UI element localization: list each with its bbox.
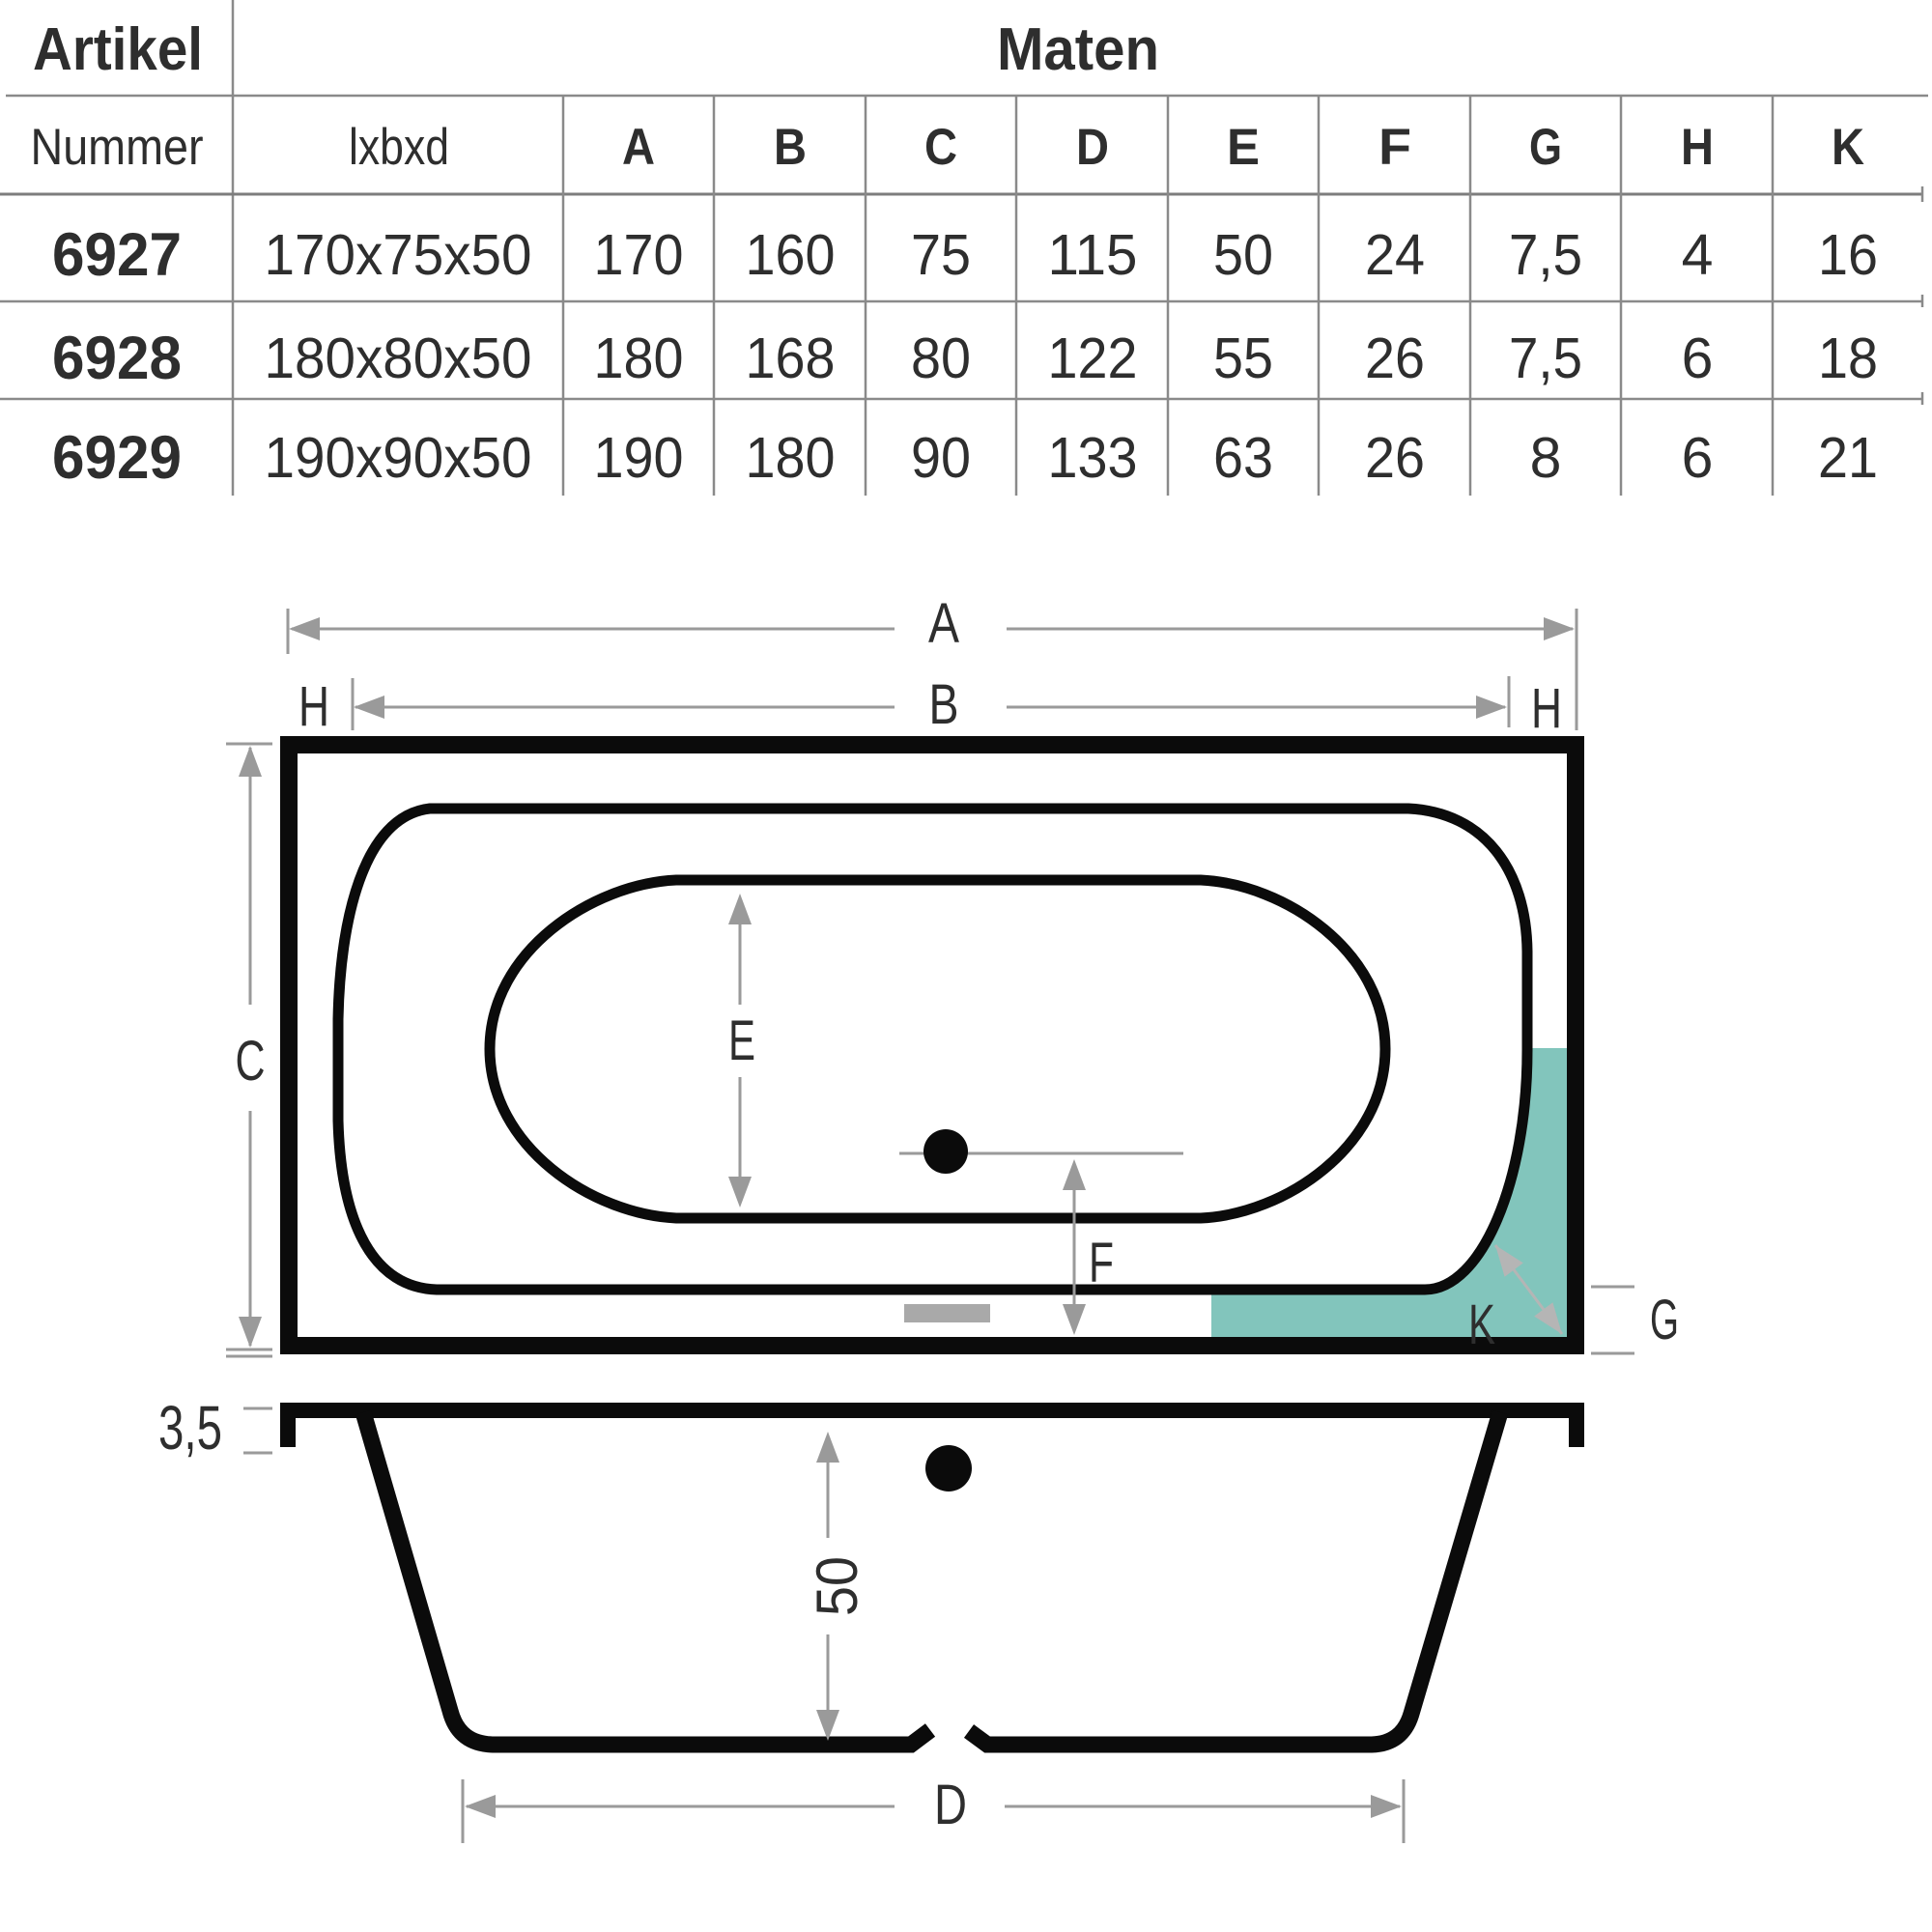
svg-text:K: K bbox=[1832, 119, 1864, 176]
svg-text:6927: 6927 bbox=[52, 221, 182, 289]
svg-text:F: F bbox=[1089, 1232, 1114, 1294]
svg-text:H: H bbox=[298, 675, 329, 738]
svg-text:B: B bbox=[774, 119, 807, 176]
svg-text:180: 180 bbox=[746, 426, 836, 490]
svg-text:90: 90 bbox=[911, 426, 971, 490]
svg-text:6929: 6929 bbox=[52, 424, 182, 492]
svg-text:115: 115 bbox=[1048, 223, 1138, 287]
svg-text:63: 63 bbox=[1213, 426, 1273, 490]
svg-text:K: K bbox=[1468, 1293, 1495, 1356]
svg-text:G: G bbox=[1650, 1289, 1679, 1351]
svg-text:50: 50 bbox=[1213, 223, 1273, 287]
svg-text:26: 26 bbox=[1365, 426, 1425, 490]
svg-text:24: 24 bbox=[1365, 223, 1425, 287]
svg-text:6928: 6928 bbox=[52, 325, 182, 392]
svg-text:168: 168 bbox=[746, 327, 836, 390]
svg-text:80: 80 bbox=[911, 327, 971, 390]
svg-text:170: 170 bbox=[594, 223, 684, 287]
svg-text:7,5: 7,5 bbox=[1509, 223, 1582, 287]
svg-text:190: 190 bbox=[594, 426, 684, 490]
svg-text:21: 21 bbox=[1818, 426, 1878, 490]
svg-text:A: A bbox=[622, 119, 655, 176]
svg-text:180: 180 bbox=[594, 327, 684, 390]
svg-text:A: A bbox=[928, 592, 959, 655]
svg-text:50: 50 bbox=[805, 1556, 869, 1616]
svg-text:8: 8 bbox=[1530, 426, 1562, 490]
svg-text:G: G bbox=[1529, 119, 1562, 176]
svg-text:55: 55 bbox=[1213, 327, 1273, 390]
svg-text:H: H bbox=[1531, 677, 1562, 740]
svg-text:26: 26 bbox=[1365, 327, 1425, 390]
svg-text:H: H bbox=[1681, 119, 1714, 176]
svg-text:122: 122 bbox=[1048, 327, 1138, 390]
svg-text:Artikel: Artikel bbox=[33, 16, 203, 83]
svg-text:4: 4 bbox=[1682, 223, 1714, 287]
svg-text:190x90x50: 190x90x50 bbox=[265, 426, 532, 490]
svg-text:6: 6 bbox=[1682, 426, 1714, 490]
svg-text:7,5: 7,5 bbox=[1509, 327, 1582, 390]
svg-text:D: D bbox=[934, 1774, 967, 1836]
svg-text:D: D bbox=[1076, 119, 1109, 176]
svg-text:6: 6 bbox=[1682, 327, 1714, 390]
svg-text:E: E bbox=[1227, 119, 1260, 176]
svg-text:133: 133 bbox=[1048, 426, 1138, 490]
svg-text:lxbxd: lxbxd bbox=[349, 119, 449, 176]
svg-text:160: 160 bbox=[746, 223, 836, 287]
svg-text:75: 75 bbox=[911, 223, 971, 287]
svg-text:B: B bbox=[929, 673, 959, 736]
svg-text:C: C bbox=[924, 119, 957, 176]
svg-text:18: 18 bbox=[1818, 327, 1878, 390]
svg-text:Maten: Maten bbox=[997, 16, 1159, 83]
svg-text:Nummer: Nummer bbox=[31, 119, 204, 176]
svg-text:170x75x50: 170x75x50 bbox=[265, 223, 532, 287]
svg-text:F: F bbox=[1378, 119, 1411, 176]
svg-text:180x80x50: 180x80x50 bbox=[265, 327, 532, 390]
svg-text:16: 16 bbox=[1818, 223, 1878, 287]
svg-text:3,5: 3,5 bbox=[158, 1393, 222, 1463]
svg-text:C: C bbox=[236, 1030, 266, 1093]
svg-text:E: E bbox=[728, 1009, 755, 1072]
